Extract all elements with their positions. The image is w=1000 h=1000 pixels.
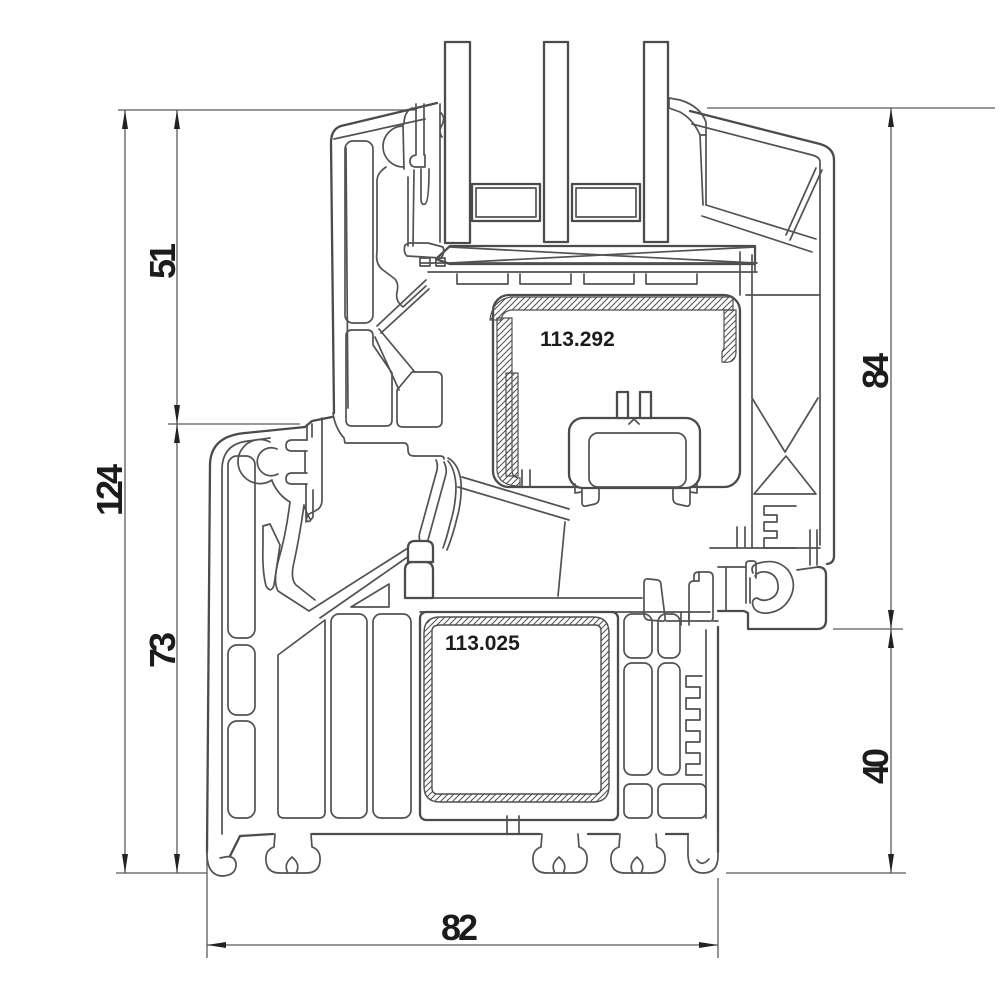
svg-text:40: 40	[855, 748, 896, 784]
svg-text:124: 124	[89, 464, 130, 516]
svg-text:51: 51	[142, 243, 183, 279]
svg-text:82: 82	[441, 907, 478, 948]
svg-text:113.292: 113.292	[540, 328, 615, 351]
svg-text:113.025: 113.025	[445, 632, 520, 655]
svg-text:84: 84	[855, 353, 896, 389]
svg-text:73: 73	[142, 632, 183, 668]
